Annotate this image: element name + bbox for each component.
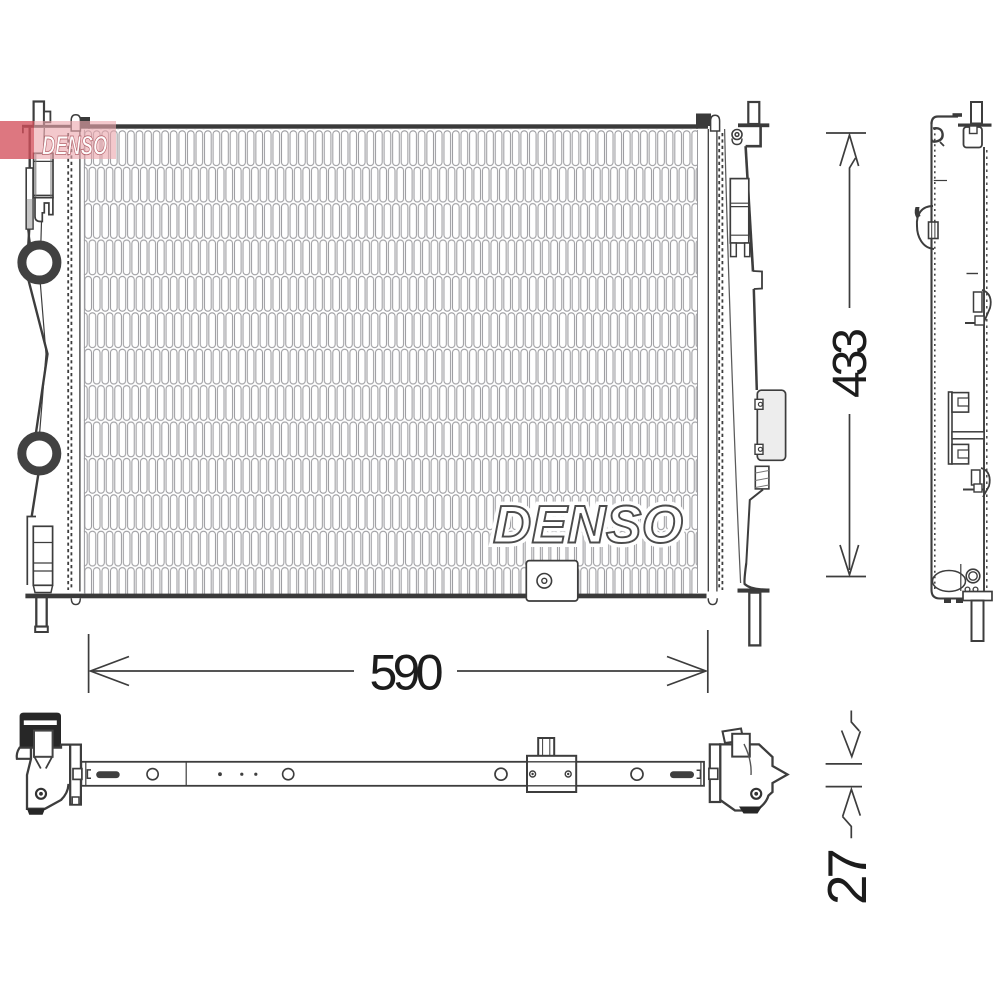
svg-text:433: 433 (824, 328, 877, 398)
svg-text:590: 590 (370, 645, 444, 701)
svg-text:DENSO: DENSO (42, 130, 107, 160)
svg-text:DENSO: DENSO (493, 496, 683, 555)
svg-text:27: 27 (816, 848, 878, 905)
